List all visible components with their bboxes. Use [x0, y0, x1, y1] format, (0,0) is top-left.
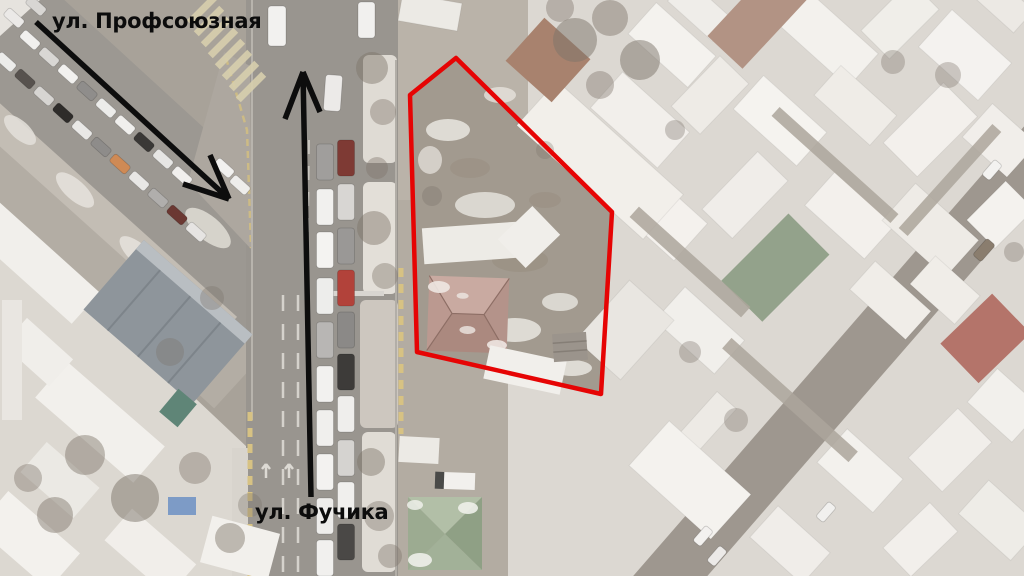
street-label-profsoyuznaya: ул. Профсоюзная [52, 9, 261, 33]
blue-roof-shed [168, 497, 196, 515]
aerial-photo: ул. Профсоюзная ул. Фучика [0, 0, 1024, 576]
street-label-fuchika: ул. Фучика [255, 500, 388, 524]
aerial-scene [0, 0, 1024, 576]
green-hip-building [407, 497, 482, 570]
ribbed-shed [552, 332, 588, 362]
main-building-roof [426, 276, 510, 354]
parked-truck [435, 472, 476, 490]
